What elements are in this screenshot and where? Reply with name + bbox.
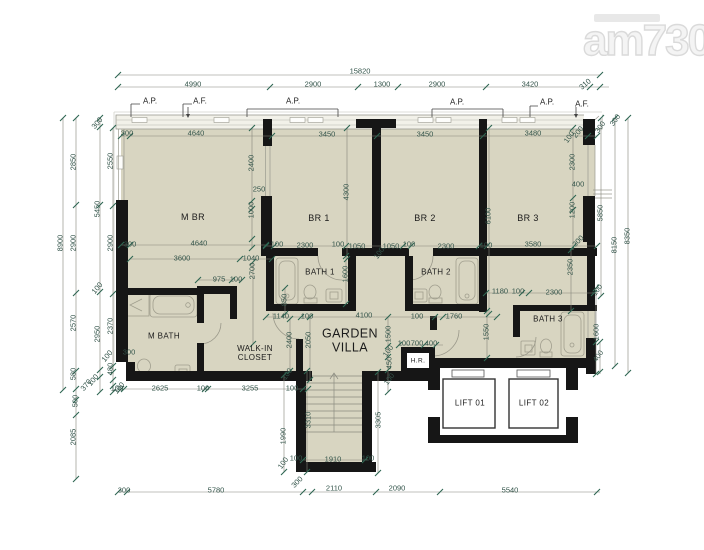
- marker-label: A.F.: [193, 97, 207, 106]
- dimension-label: 2570: [69, 315, 78, 332]
- room-label-lift-02: LIFT 02: [519, 398, 549, 407]
- dimension-label: 2850: [69, 154, 78, 171]
- dimension-label: 2700: [248, 263, 257, 280]
- dimension-label: 300: [118, 486, 131, 495]
- dimension-label: 3600: [174, 254, 191, 263]
- dimension-label: 2110: [326, 484, 342, 493]
- dimension-label: 250: [253, 185, 266, 194]
- dimension-label: 2550: [106, 153, 115, 170]
- dimension-label: 4640: [188, 129, 205, 138]
- dimension-label: 2050: [304, 332, 313, 349]
- dimension-label: 8900: [56, 235, 65, 252]
- dimension-label: 300: [124, 240, 137, 249]
- dimension-label: 500: [71, 395, 80, 408]
- dimension-label: 100: [512, 287, 525, 296]
- room-label-br-1: BR 1: [308, 213, 330, 223]
- dimension-label: 1500: [384, 326, 393, 343]
- am730-logo: am730: [583, 16, 704, 66]
- room-label-bath-3: BATH 3: [533, 314, 563, 323]
- lift-01-door: [452, 370, 484, 377]
- dimension-label: 850: [280, 294, 289, 307]
- dimension-label: 300: [123, 348, 136, 357]
- dimension-label: 3310: [304, 412, 313, 429]
- room-label-bath-1: BATH 1: [305, 267, 335, 276]
- dimension-label: 2900: [69, 235, 78, 252]
- dimension-label: 3580: [525, 240, 542, 249]
- marker-label: A.P.: [286, 97, 300, 106]
- room-label-m-br: M BR: [181, 212, 205, 222]
- dimension-label: 2400: [247, 155, 256, 172]
- dimension-label: 100: [271, 240, 284, 249]
- dimension-label: 100: [286, 384, 299, 393]
- dimension-label: 2370: [106, 318, 115, 335]
- dimension-label: 4100: [356, 311, 373, 320]
- dimension-label: 700: [411, 339, 424, 348]
- dimension-label: 1990: [279, 428, 288, 445]
- dimension-label: 1600: [341, 266, 350, 283]
- dimension-label: 580: [69, 368, 78, 381]
- dimension-label: 2090: [389, 484, 406, 493]
- dimension-label: 480: [106, 363, 115, 376]
- dimension-label: 1000: [247, 202, 256, 219]
- dimension-label: 100: [290, 454, 303, 463]
- dimension-label: 1550: [482, 324, 491, 341]
- dimension-label: 3420: [522, 80, 539, 89]
- dimension-label: 2900: [429, 80, 446, 89]
- dimension-label: 3450: [417, 130, 434, 139]
- room-label-lift-01: LIFT 01: [455, 398, 485, 407]
- dimension-label: 100: [332, 240, 345, 249]
- room-label-bath-2: BATH 2: [421, 267, 451, 276]
- dimension-label: 975: [213, 275, 226, 284]
- dimension-label: 4300: [342, 184, 351, 201]
- dimension-label: 450: [385, 357, 394, 370]
- dimension-label: 5850: [596, 205, 605, 222]
- dimension-label: 100: [362, 454, 375, 463]
- room-label-walk-in-closet: WALK-IN CLOSET: [237, 344, 273, 362]
- dimension-label: 100: [480, 241, 493, 250]
- dimension-label: 100: [411, 312, 424, 321]
- room-label-hr: H.R.: [411, 357, 426, 364]
- marker-label: A.P.: [450, 98, 464, 107]
- marker-label: A.F.: [575, 100, 589, 109]
- dimension-label: 100: [398, 339, 411, 348]
- dimension-label: 5450: [93, 201, 102, 218]
- dimension-label: 1180: [492, 287, 508, 296]
- dimension-label: 1040: [243, 254, 260, 263]
- lift-02-door: [517, 370, 550, 377]
- floorplan-page: am730 1582049902900130029003420310300464…: [0, 0, 704, 550]
- dimension-label: 3480: [525, 129, 542, 138]
- dimension-label: 2400: [285, 332, 294, 349]
- dimension-label: 2900: [106, 235, 115, 252]
- dimension-label: 100: [197, 384, 210, 393]
- dimension-label: 1910: [325, 455, 342, 464]
- dimension-label: 400: [425, 339, 438, 348]
- dimension-label: 100: [403, 240, 416, 249]
- dimension-label: 2350: [566, 259, 575, 276]
- dimension-label: 5780: [208, 486, 225, 495]
- dimension-label: 100: [230, 275, 243, 284]
- dimension-label: 5540: [502, 486, 519, 495]
- dimension-label: 1200: [568, 202, 577, 219]
- dimension-label: 2625: [152, 384, 169, 393]
- dimension-label: 2300: [438, 242, 455, 251]
- dimension-label: 1760: [446, 312, 463, 321]
- dimension-label: 2300: [297, 241, 314, 250]
- dimension-label: 2950: [93, 326, 102, 343]
- dimension-label: 4990: [185, 80, 202, 89]
- dimension-label: 100: [111, 384, 124, 393]
- dimension-label: 100: [301, 312, 314, 321]
- dimension-label: 6100: [484, 208, 493, 225]
- floorplan-drawing: [0, 0, 704, 550]
- marker-label: A.P.: [540, 98, 554, 107]
- dimension-label: 4640: [191, 239, 208, 248]
- dimension-label: 3450: [319, 130, 336, 139]
- marker-label: A.P.: [143, 97, 157, 106]
- dimension-label: 2900: [305, 80, 322, 89]
- dimension-label: 2300: [546, 288, 563, 297]
- room-label-br-3: BR 3: [517, 213, 539, 223]
- dimension-label: 1140: [273, 312, 289, 321]
- dimension-label: 2300: [568, 154, 577, 171]
- dimension-label: 3305: [374, 412, 383, 429]
- dimension-label: 400: [572, 180, 585, 189]
- room-label-m-bath: M BATH: [148, 331, 180, 340]
- dimension-label: 1600: [592, 324, 601, 341]
- dimension-label: 8350: [623, 228, 632, 245]
- room-label-garden-villa: GARDEN VILLA: [322, 327, 378, 356]
- dimension-label: 15820: [350, 67, 371, 76]
- dimension-label: 2085: [69, 429, 78, 446]
- dimension-label: 1300: [374, 80, 391, 89]
- dimension-label: 3255: [242, 384, 259, 393]
- dimension-label: 1050: [349, 242, 366, 251]
- dimension-label: 300: [121, 129, 134, 138]
- room-label-br-2: BR 2: [414, 213, 436, 223]
- dimension-label: 8150: [610, 237, 619, 254]
